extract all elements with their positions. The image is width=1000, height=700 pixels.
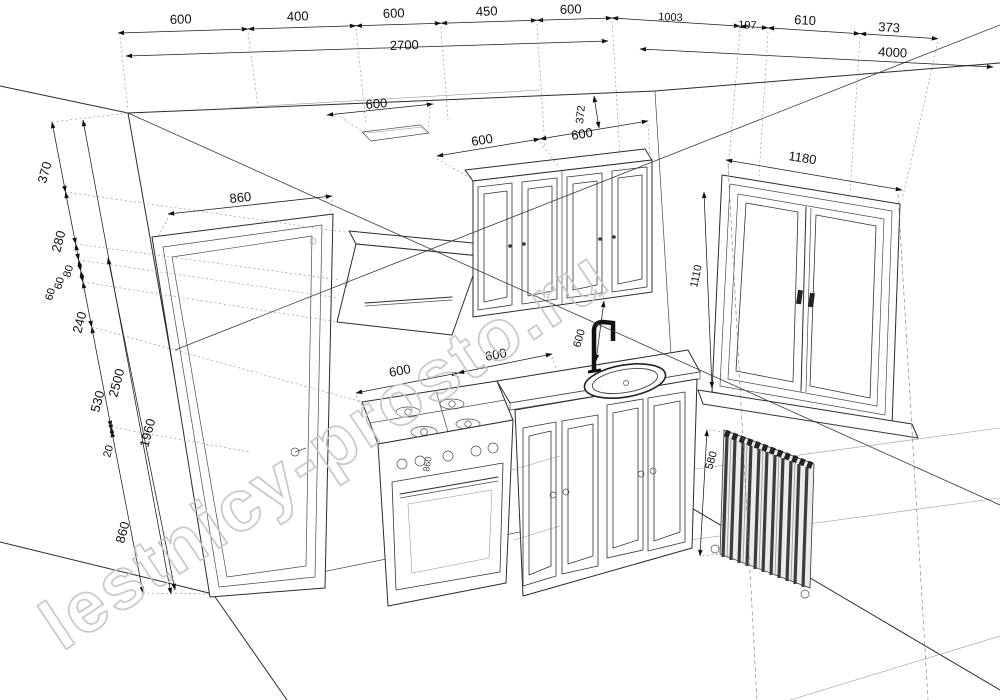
faucet-base [588,370,601,372]
wall-door-knob-2 [522,242,526,246]
dim-label: 600 [170,11,192,27]
dim-label: 373 [878,19,901,35]
dim-label: 1180 [788,148,818,167]
ceiling-edge-right-wall [655,63,1000,91]
wall-door-knob-4 [612,235,616,239]
dim-label: 240 [69,310,89,335]
wall-door-knob-3 [598,237,602,241]
dim-label: 600 [570,125,594,143]
kitchen-drawing-page: 860 [0,0,1000,700]
radiator-valve-left [711,545,719,553]
dim-total-label: 2700 [390,37,419,53]
dim-label: 530 [87,389,107,414]
dim-label: 600 [470,131,494,149]
dim-label: 60 [52,276,67,291]
wall-door-knob-1 [508,244,512,248]
kitchen-drawing: 860 [0,0,1000,700]
dim-label: 860 [229,189,252,206]
dim-door-opening: 1960 [136,417,158,449]
dim-label: 600 [365,95,388,112]
dim-label: 370 [34,160,54,185]
dim-label: 600 [560,1,582,17]
dim-label: 600 [383,5,405,21]
dim-label: 197 [738,19,757,32]
dim-label: 1110 [688,264,704,289]
dim-total-label: 4000 [878,44,908,60]
base-cabinet-front [515,379,697,596]
dim-right-wall-top: 1003 197 610 373 4000 [612,11,993,200]
dim-label: 20 [101,444,116,459]
ceiling-edge-left [0,86,128,113]
radiator-valve-right [801,590,809,598]
dim-label: 610 [794,12,816,28]
dim-label: 1003 [658,11,683,24]
ceiling-vent [362,125,429,141]
dim-label: 280 [48,229,68,254]
dim-label: 450 [476,3,498,19]
dim-label: 80 [61,264,76,279]
floor-corner-ray [213,594,287,700]
dim-label: 400 [287,8,309,24]
dim-label: 372 [574,105,588,125]
right-wall-guide-3 [790,636,1000,700]
dim-wall-height: 2500 [105,367,127,399]
